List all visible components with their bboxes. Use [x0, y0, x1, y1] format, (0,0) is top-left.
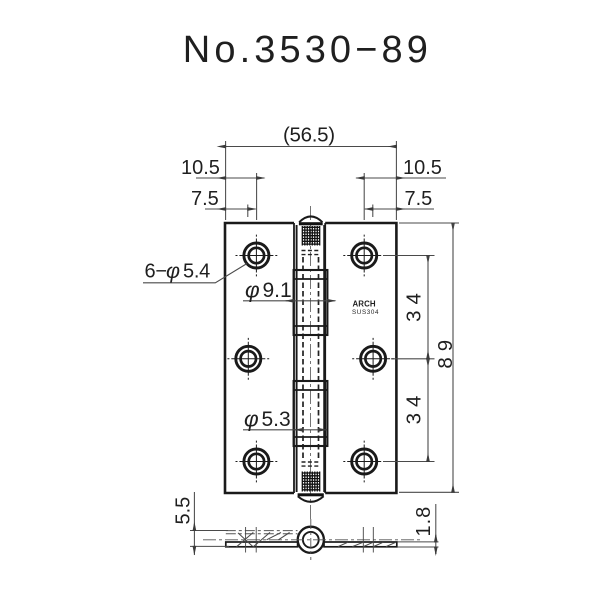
svg-text:7.5: 7.5	[191, 188, 219, 210]
svg-text:5.5: 5.5	[173, 497, 195, 525]
svg-text:7.5: 7.5	[405, 188, 433, 210]
svg-text:ARCH: ARCH	[353, 299, 376, 308]
svg-text:10.5: 10.5	[403, 157, 442, 179]
svg-text:5.4: 5.4	[183, 261, 210, 283]
svg-text:34: 34	[403, 287, 426, 322]
svg-text:No.3530−89: No.3530−89	[183, 29, 432, 71]
svg-text:(56.5): (56.5)	[283, 124, 335, 147]
svg-text:φ: φ	[245, 278, 260, 303]
svg-text:SUS304: SUS304	[352, 309, 379, 316]
svg-text:φ: φ	[244, 407, 259, 432]
svg-text:10.5: 10.5	[181, 157, 220, 179]
svg-text:34: 34	[403, 390, 426, 425]
svg-text:9.1: 9.1	[263, 279, 292, 302]
svg-text:5.3: 5.3	[262, 408, 291, 431]
svg-text:1.8: 1.8	[413, 506, 435, 537]
svg-text:6−: 6−	[145, 261, 167, 283]
svg-text:89: 89	[434, 334, 457, 369]
svg-text:φ: φ	[166, 259, 180, 283]
